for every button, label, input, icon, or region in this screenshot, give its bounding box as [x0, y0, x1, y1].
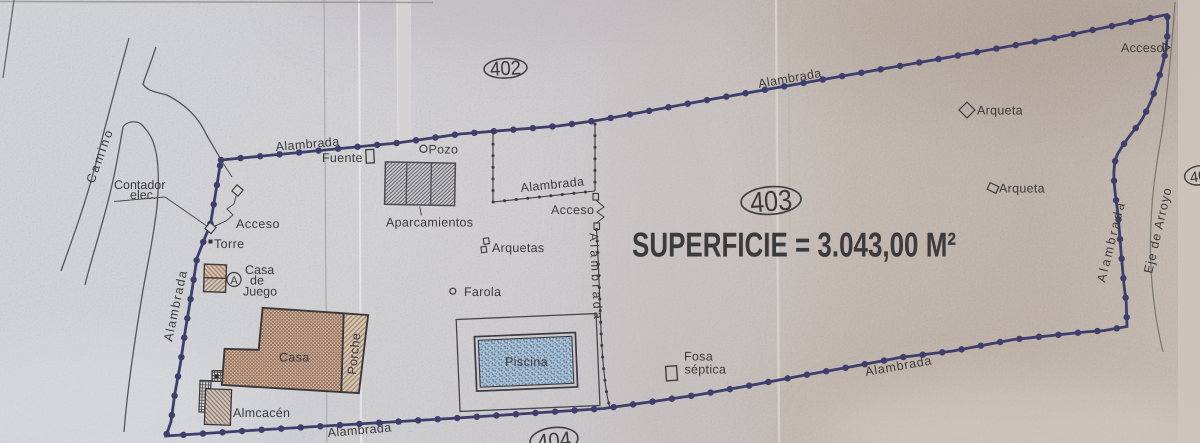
svg-text:402: 402 [489, 57, 521, 81]
svg-text:Acceso: Acceso [236, 217, 280, 231]
svg-text:Arquetas: Arquetas [492, 241, 544, 255]
svg-text:40: 40 [1189, 167, 1200, 186]
svg-text:Fuente: Fuente [322, 151, 363, 165]
svg-text:Piscina: Piscina [505, 355, 548, 369]
svg-text:Torre: Torre [214, 237, 244, 251]
svg-text:Juego: Juego [243, 285, 277, 299]
svg-text:A: A [230, 275, 238, 287]
svg-text:403: 403 [749, 185, 793, 220]
svg-text:Fosa: Fosa [684, 350, 713, 364]
svg-text:404: 404 [536, 426, 572, 443]
svg-text:Aparcamientos: Aparcamientos [386, 216, 473, 230]
svg-text:Arqueta: Arqueta [999, 182, 1045, 196]
svg-text:Almcacén: Almcacén [233, 406, 290, 420]
svg-text:Arqueta: Arqueta [977, 104, 1023, 118]
svg-text:Casa: Casa [279, 351, 310, 365]
svg-text:Acceso: Acceso [1121, 41, 1164, 55]
svg-text:Farola: Farola [464, 285, 501, 299]
svg-text:séptica: séptica [685, 363, 727, 377]
svg-text:Pozo: Pozo [429, 143, 459, 157]
svg-text:Acceso: Acceso [551, 203, 594, 217]
svg-text:SUPERFICIE = 3.043,00 M²: SUPERFICIE = 3.043,00 M² [632, 227, 956, 265]
